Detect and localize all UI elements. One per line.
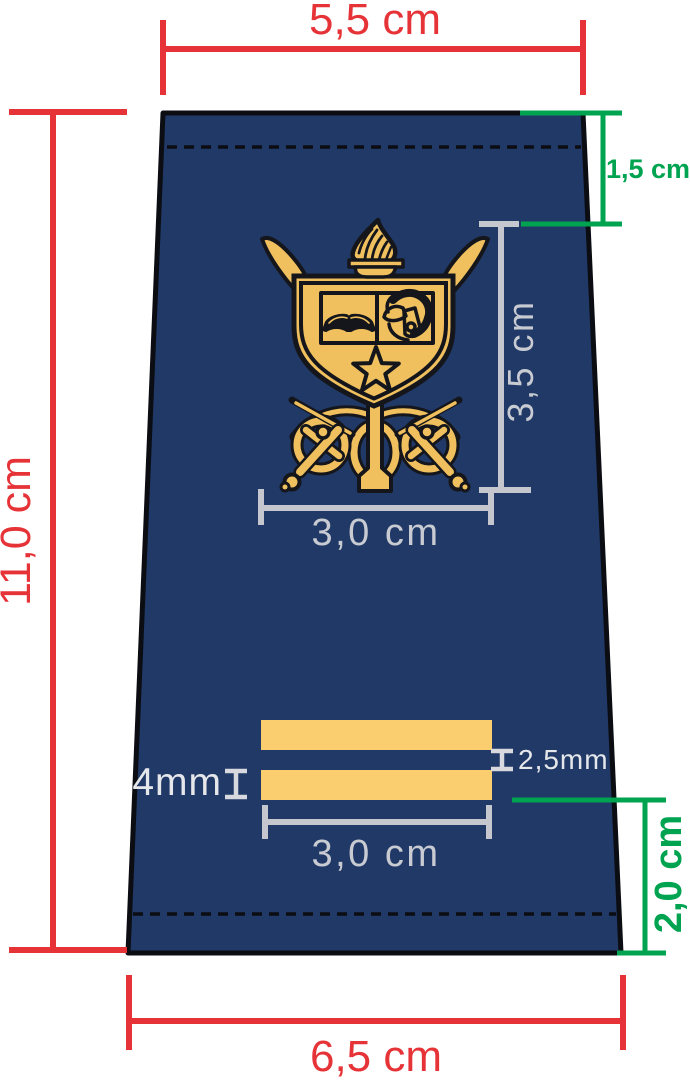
svg-text:6,5 cm: 6,5 cm bbox=[310, 1032, 442, 1080]
svg-text:3,5 cm: 3,5 cm bbox=[500, 299, 541, 422]
svg-text:3,0 cm: 3,0 cm bbox=[311, 833, 440, 875]
svg-text:3,0 cm: 3,0 cm bbox=[311, 512, 440, 554]
svg-text:5,5 cm: 5,5 cm bbox=[309, 0, 441, 44]
svg-text:2,0 cm: 2,0 cm bbox=[648, 815, 690, 933]
svg-text:2,5mm: 2,5mm bbox=[518, 744, 609, 775]
svg-text:1,5 cm: 1,5 cm bbox=[606, 154, 690, 184]
svg-text:11,0 cm: 11,0 cm bbox=[0, 456, 40, 606]
svg-text:4mm: 4mm bbox=[132, 761, 222, 804]
